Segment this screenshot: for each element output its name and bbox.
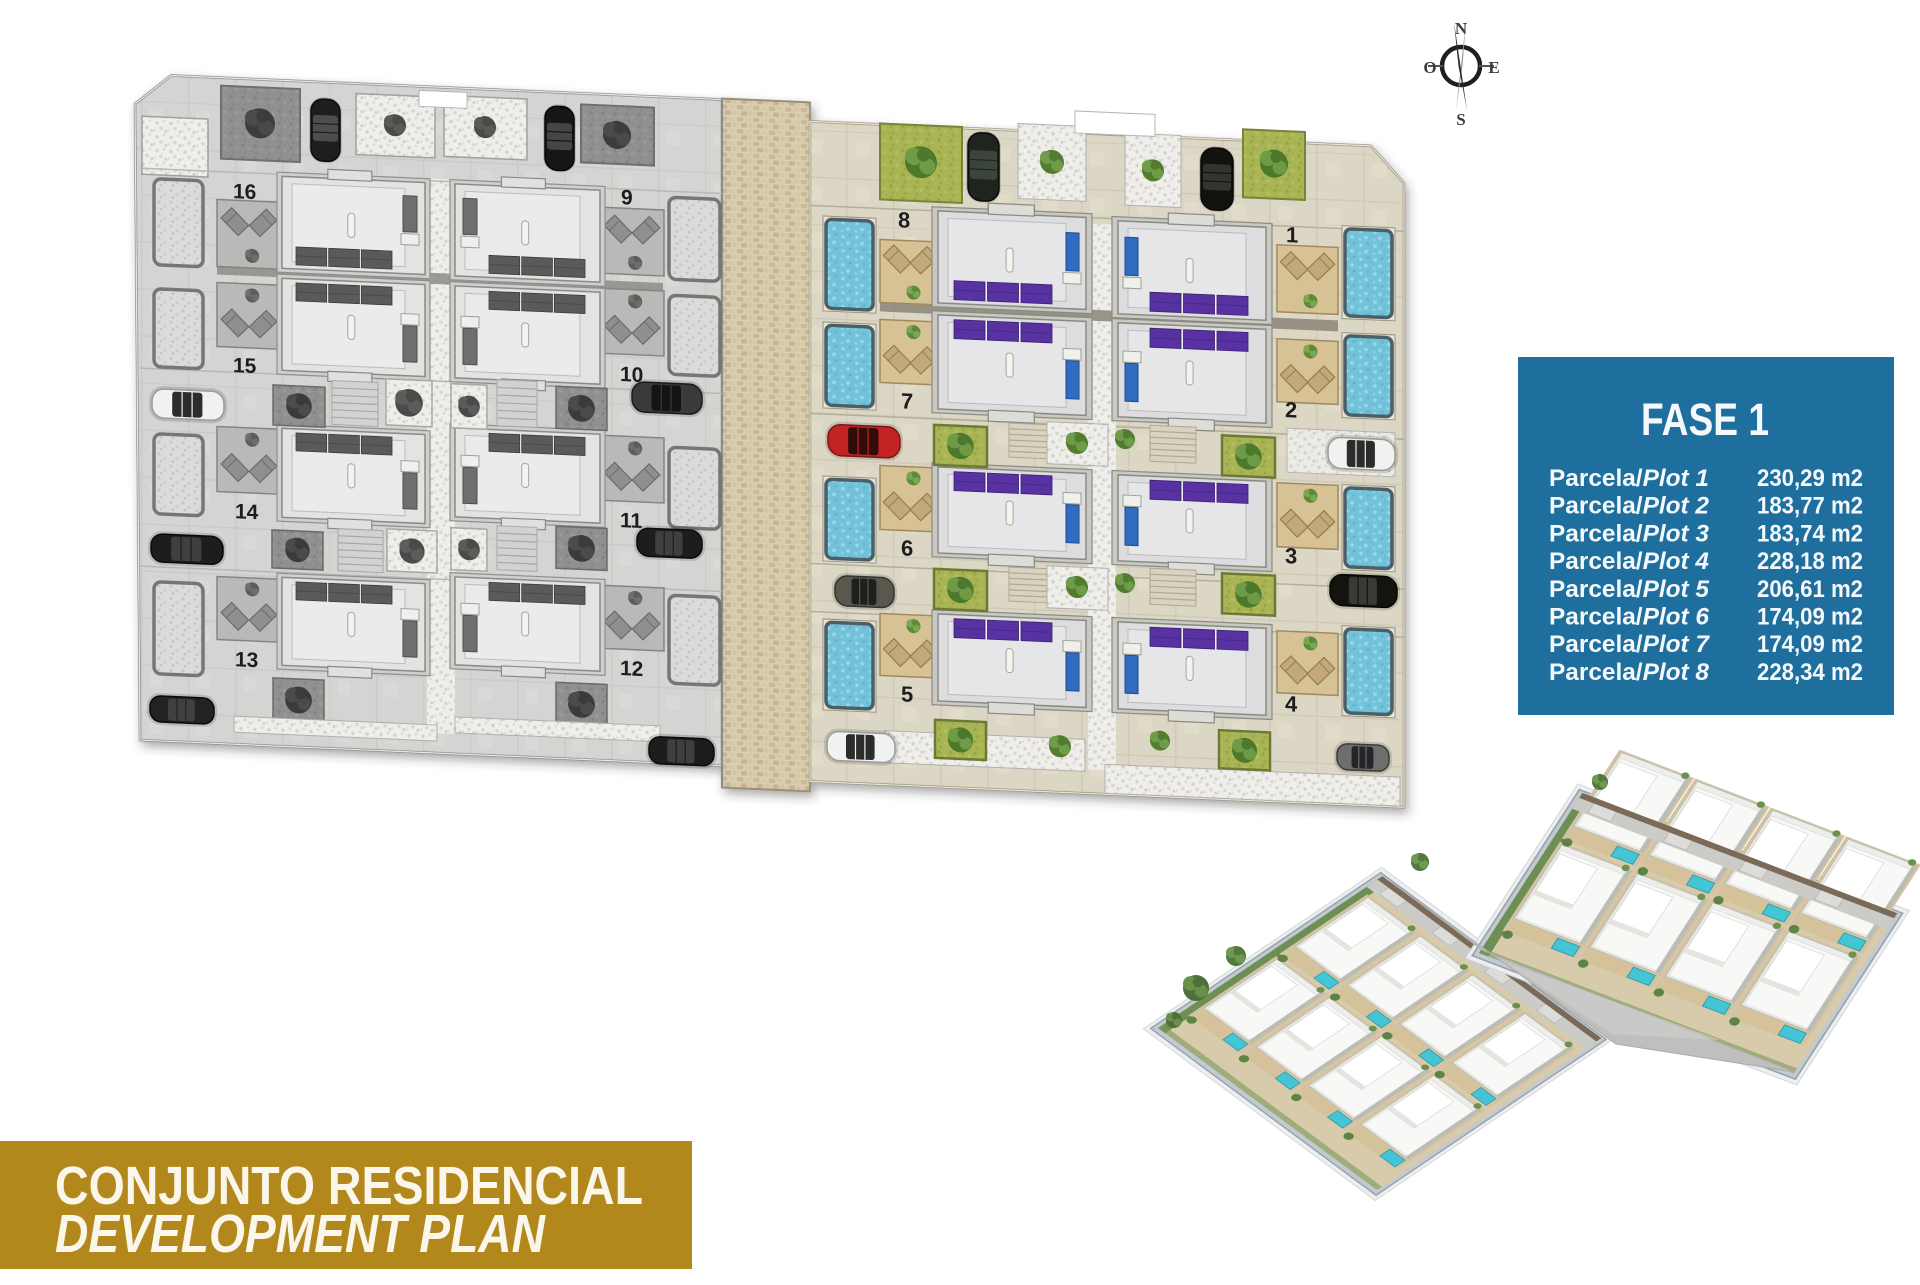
svg-text:16: 16: [233, 180, 256, 204]
svg-text:174,09 m2: 174,09 m2: [1757, 604, 1863, 631]
svg-text:N: N: [1455, 19, 1468, 38]
svg-text:13: 13: [235, 648, 258, 672]
svg-text:230,29 m2: 230,29 m2: [1757, 465, 1863, 492]
svg-text:9: 9: [621, 186, 633, 209]
svg-text:Parcela/Plot 1: Parcela/Plot 1: [1549, 465, 1709, 492]
svg-text:8: 8: [898, 207, 910, 233]
svg-text:Parcela/Plot 5: Parcela/Plot 5: [1549, 576, 1710, 603]
svg-text:14: 14: [235, 500, 259, 524]
svg-text:10: 10: [620, 363, 643, 387]
svg-text:183,77 m2: 183,77 m2: [1757, 493, 1863, 520]
svg-text:Parcela/Plot 2: Parcela/Plot 2: [1549, 493, 1710, 520]
svg-text:S: S: [1456, 110, 1465, 129]
svg-text:E: E: [1488, 58, 1499, 77]
svg-text:1: 1: [1286, 222, 1298, 248]
svg-text:7: 7: [901, 388, 913, 414]
svg-text:4: 4: [1285, 691, 1298, 717]
svg-text:2: 2: [1285, 397, 1297, 423]
svg-text:174,09 m2: 174,09 m2: [1757, 631, 1863, 658]
svg-text:12: 12: [620, 657, 643, 681]
svg-text:DEVELOPMENT PLAN: DEVELOPMENT PLAN: [55, 1204, 546, 1264]
svg-text:5: 5: [901, 681, 913, 707]
svg-text:O: O: [1423, 58, 1436, 77]
svg-text:3: 3: [1285, 543, 1297, 569]
svg-text:228,34 m2: 228,34 m2: [1757, 659, 1863, 686]
svg-text:15: 15: [233, 354, 257, 378]
svg-text:11: 11: [620, 509, 643, 533]
svg-text:Parcela/Plot 6: Parcela/Plot 6: [1549, 604, 1710, 631]
svg-text:Parcela/Plot 3: Parcela/Plot 3: [1549, 520, 1710, 547]
svg-text:Parcela/Plot 7: Parcela/Plot 7: [1549, 631, 1711, 658]
svg-text:6: 6: [901, 535, 913, 561]
svg-text:183,74 m2: 183,74 m2: [1757, 520, 1863, 547]
svg-text:FASE 1: FASE 1: [1641, 394, 1769, 445]
svg-text:206,61 m2: 206,61 m2: [1757, 576, 1863, 603]
svg-text:228,18 m2: 228,18 m2: [1757, 548, 1863, 575]
svg-text:Parcela/Plot 4: Parcela/Plot 4: [1549, 548, 1709, 575]
svg-text:Parcela/Plot 8: Parcela/Plot 8: [1549, 659, 1710, 686]
